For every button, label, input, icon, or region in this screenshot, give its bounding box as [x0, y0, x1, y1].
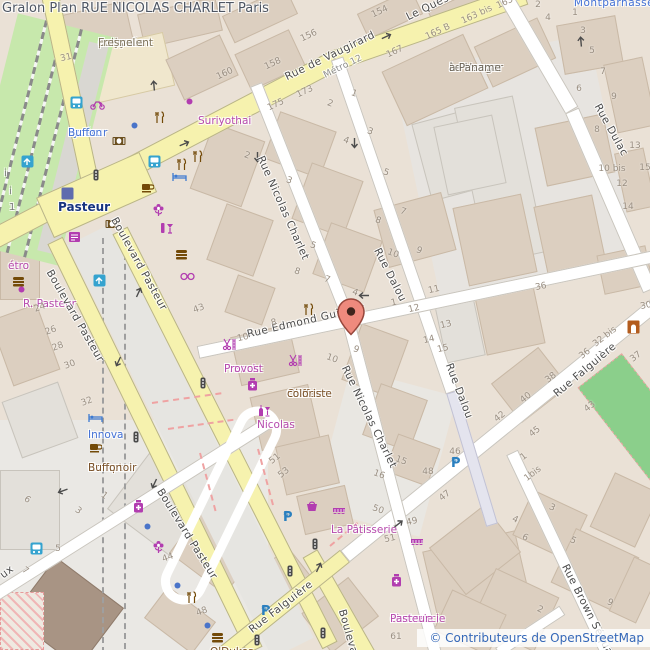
house-number: 14	[622, 202, 633, 212]
page-title: Gralon Plan RUE NICOLAS CHARLET Paris	[2, 1, 269, 16]
house-number: 30	[63, 358, 77, 371]
house-number: 1	[572, 8, 578, 18]
house-number: 28	[51, 340, 65, 353]
map-canvas[interactable]: Gralon Plan RUE NICOLAS CHARLET Paris Su…	[0, 0, 650, 650]
house-number: 45	[527, 425, 542, 440]
house-number: 5	[382, 167, 391, 178]
house-number: 51	[383, 533, 396, 545]
house-number: 156	[299, 28, 319, 44]
house-number: 9	[611, 92, 617, 102]
building	[206, 203, 274, 276]
house-number: 26	[44, 324, 58, 337]
house-number: 37	[628, 350, 643, 365]
building	[0, 470, 60, 550]
house-number: 6	[576, 84, 582, 94]
house-number: 32	[80, 395, 94, 408]
house-number: 2	[535, 0, 541, 10]
house-number: 46	[449, 447, 460, 457]
median-path	[124, 234, 126, 650]
house-number: 36	[534, 281, 547, 293]
house-number: 43	[192, 302, 206, 315]
house-number: 4	[545, 13, 551, 23]
house-number: 12	[616, 179, 627, 189]
house-number: 2	[326, 98, 335, 109]
house-number: 61	[390, 632, 401, 642]
house-number: 48	[422, 467, 433, 477]
house-number: 5	[55, 544, 61, 554]
osm-attribution[interactable]: © Contributeurs de OpenStreetMap	[417, 629, 650, 647]
house-number: 30	[639, 300, 650, 312]
house-number: 8	[270, 317, 278, 328]
house-number: 15	[639, 163, 650, 173]
house-number: 3	[580, 26, 586, 36]
house-number: 10	[325, 352, 339, 365]
building	[590, 472, 650, 548]
house-number: 7	[600, 67, 606, 77]
house-number: 8	[594, 125, 600, 135]
house-number: 13	[629, 141, 640, 151]
house-number: 10 bis	[598, 164, 625, 174]
house-number: 47	[437, 489, 452, 504]
median-path	[102, 238, 104, 650]
construction-area	[0, 592, 44, 650]
house-number: 5	[589, 46, 595, 56]
street-label: Montparnasse	[574, 0, 650, 9]
house-number: 8	[293, 266, 302, 277]
building	[224, 274, 275, 325]
